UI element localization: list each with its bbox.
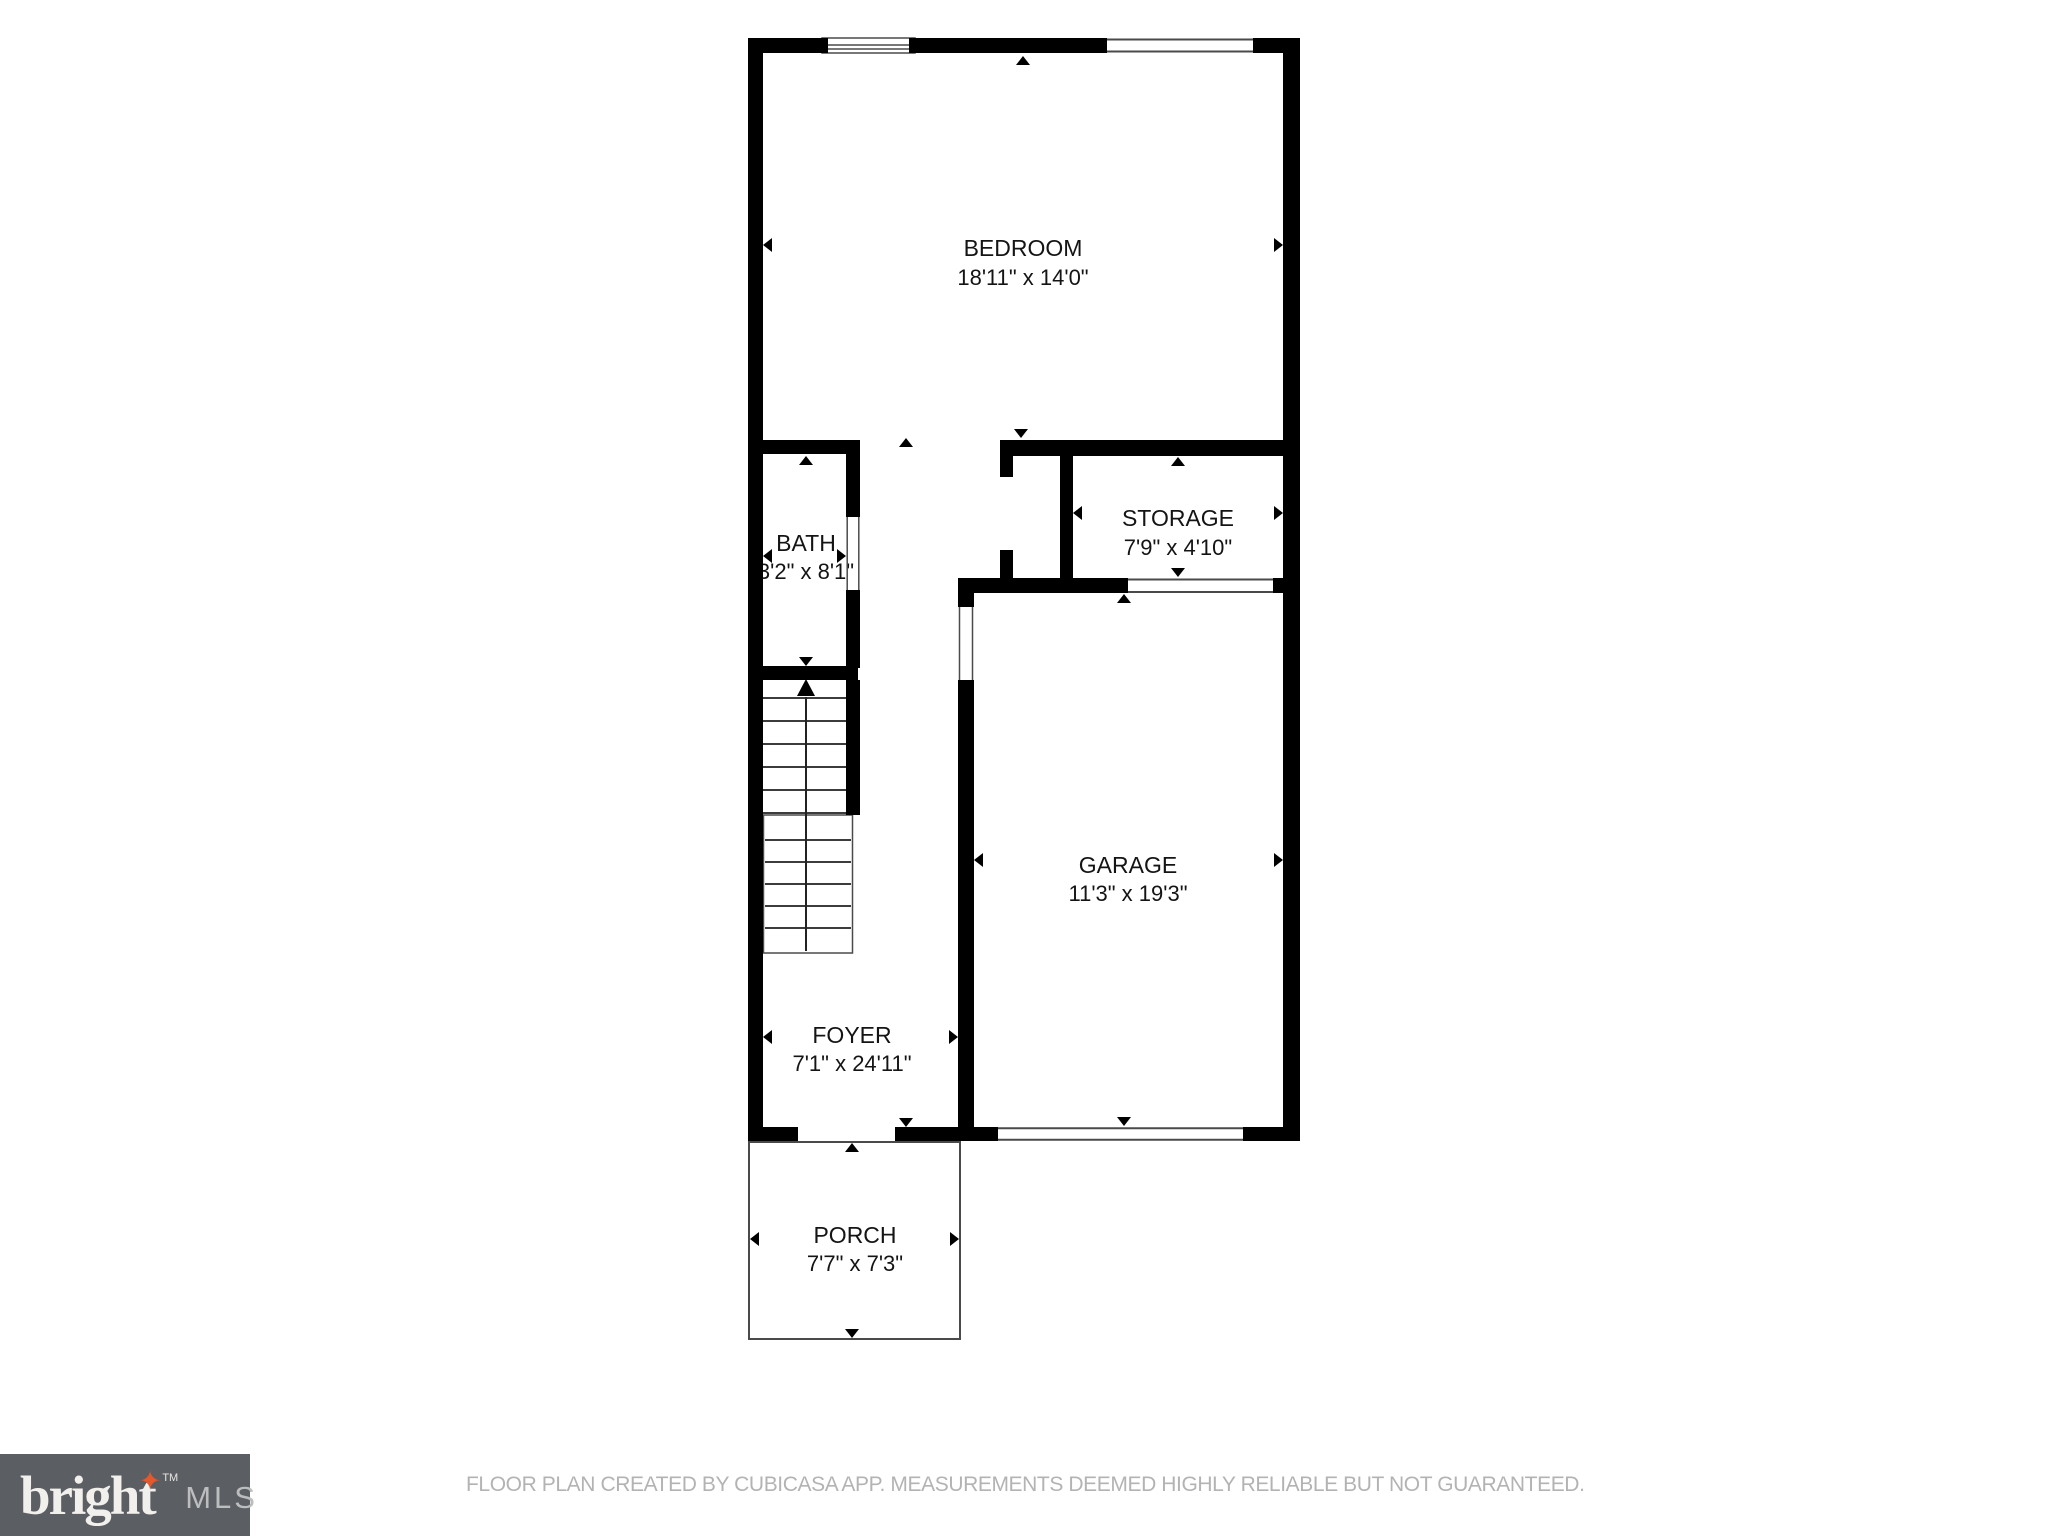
room-label-garage: GARAGE	[1079, 852, 1177, 878]
walls	[748, 38, 1300, 1141]
arrow-porch-top-icon	[845, 1143, 859, 1152]
wall-top-b	[915, 38, 1107, 53]
room-dims-bedroom: 18'11" x 14'0"	[957, 265, 1088, 290]
wall-closet-upper	[1000, 440, 1013, 477]
opening-top-right	[1107, 40, 1253, 52]
floor-plan-drawing: BEDROOM 18'11" x 14'0" BATH 3'2" x 8'1" …	[0, 0, 2048, 1536]
room-label-storage: STORAGE	[1122, 505, 1234, 531]
brightmls-logo: bright ✦ TM MLS	[0, 1454, 250, 1536]
window-top	[822, 38, 915, 53]
wall-garage-top	[958, 578, 1128, 593]
arrow-garage-right-icon	[1274, 853, 1283, 867]
room-label-foyer: FOYER	[812, 1022, 891, 1048]
arrow-foyer-top-icon	[899, 438, 913, 447]
room-label-bath: BATH	[776, 530, 836, 556]
window-jamb-right	[909, 38, 915, 53]
room-dims-garage: 11'3" x 19'3"	[1068, 881, 1187, 906]
wall-bath-bottom	[748, 666, 858, 680]
arrow-porch-bottom-icon	[845, 1329, 859, 1338]
wall-bath-right-upper	[846, 440, 860, 517]
room-label-bedroom: BEDROOM	[964, 235, 1083, 261]
room-dims-storage: 7'9" x 4'10"	[1124, 535, 1232, 560]
storage-garage-opening	[1128, 580, 1285, 593]
room-dims-foyer: 7'1" x 24'11"	[792, 1051, 911, 1076]
arrow-porch-right-icon	[950, 1232, 959, 1246]
arrow-storage-right-icon	[1274, 506, 1283, 520]
wall-bath-top	[748, 440, 858, 454]
wall-garage-left-b	[958, 680, 974, 1127]
logo-mls-text: MLS	[185, 1480, 258, 1516]
arrow-bath-bottom-icon	[799, 657, 813, 666]
arrow-storage-top-icon	[1171, 457, 1185, 466]
stairs-up-arrow-icon	[797, 679, 815, 696]
wall-bath-right-lower	[846, 590, 860, 668]
garage-foyer-door-opening	[960, 607, 973, 680]
wall-left	[748, 38, 763, 1141]
wall-bottom-a	[748, 1127, 798, 1141]
wall-bottom-c	[1243, 1127, 1300, 1141]
room-label-porch: PORCH	[813, 1222, 896, 1248]
room-dims-porch: 7'7" x 7'3"	[807, 1251, 903, 1276]
wall-storage-left	[1060, 440, 1073, 593]
arrow-garage-bottom-icon	[1117, 1117, 1131, 1126]
wall-top-a	[748, 38, 822, 53]
room-labels: BEDROOM 18'11" x 14'0" BATH 3'2" x 8'1" …	[758, 235, 1234, 1276]
disclaimer-text: FLOOR PLAN CREATED BY CUBICASA APP. MEAS…	[466, 1473, 1646, 1497]
stairs	[763, 679, 853, 953]
arrow-foyer-bottom-icon	[899, 1118, 913, 1127]
arrow-storage-left-icon	[1073, 506, 1082, 520]
wall-garage-left-a	[958, 578, 974, 607]
arrow-porch-left-icon	[750, 1232, 759, 1246]
arrow-bedroom-right-icon	[1274, 238, 1283, 252]
floor-plan-page: BEDROOM 18'11" x 14'0" BATH 3'2" x 8'1" …	[0, 0, 2048, 1536]
arrow-bedroom-left-icon	[763, 238, 772, 252]
wall-storage-bottom-stub	[1273, 578, 1300, 593]
arrow-garage-left-icon	[974, 853, 983, 867]
trademark-symbol: TM	[162, 1472, 178, 1484]
sparkle-star-icon: ✦	[139, 1468, 162, 1495]
arrow-bedroom-bottom-icon	[1014, 429, 1028, 438]
window-jamb-left	[822, 38, 828, 53]
arrow-foyer-right-icon	[949, 1030, 958, 1044]
logo-wordmark: bright	[20, 1468, 155, 1523]
arrow-foyer-left-icon	[763, 1030, 772, 1044]
arrow-garage-top-icon	[1117, 594, 1131, 603]
wall-stairs-right	[846, 680, 860, 815]
room-dims-bath: 3'2" x 8'1"	[758, 559, 854, 584]
wall-storage-top	[1000, 440, 1300, 456]
arrow-bedroom-top-icon	[1016, 56, 1030, 65]
garage-door-opening	[998, 1128, 1243, 1140]
wall-top-c	[1253, 38, 1300, 53]
arrow-storage-bottom-icon	[1171, 568, 1185, 577]
arrow-bath-top-icon	[799, 456, 813, 465]
wall-bottom-b	[895, 1127, 998, 1141]
